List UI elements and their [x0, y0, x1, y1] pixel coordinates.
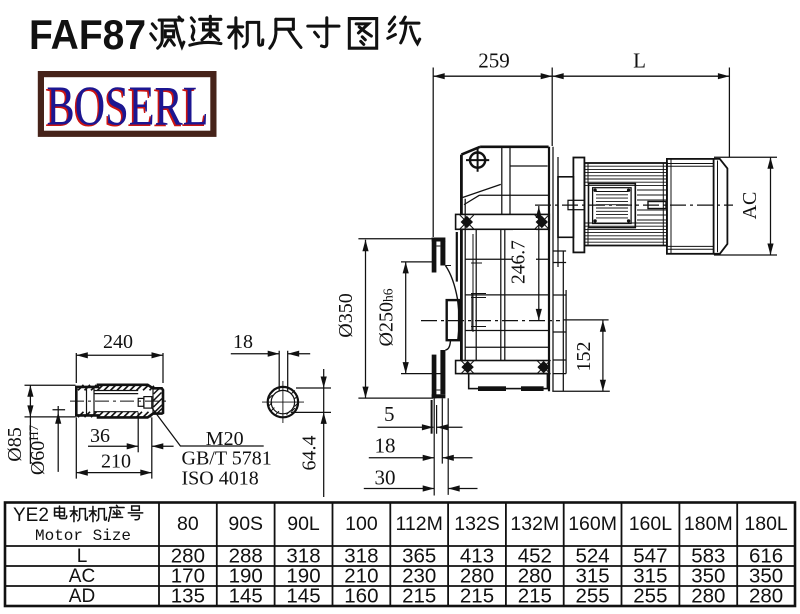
svg-text:18: 18	[375, 434, 396, 458]
svg-text:210: 210	[101, 451, 131, 473]
svg-text:L: L	[77, 546, 88, 567]
svg-text:AD: AD	[69, 586, 95, 607]
svg-text:90L: 90L	[287, 513, 320, 535]
svg-text:YE2: YE2	[13, 505, 49, 526]
svg-text:BOSERL: BOSERL	[47, 75, 209, 137]
svg-text:280: 280	[691, 585, 725, 608]
svg-text:180L: 180L	[744, 513, 788, 535]
svg-text:Ø60H7: Ø60H7	[26, 424, 49, 475]
svg-text:152: 152	[573, 342, 595, 372]
svg-text:100: 100	[345, 513, 378, 535]
svg-text:180M: 180M	[684, 513, 733, 535]
svg-text:5: 5	[384, 402, 395, 426]
svg-text:132M: 132M	[510, 513, 559, 535]
svg-text:GB/T 5781: GB/T 5781	[182, 448, 272, 470]
svg-text:160L: 160L	[629, 513, 673, 535]
svg-text:145: 145	[229, 585, 263, 608]
svg-text:255: 255	[575, 585, 609, 608]
svg-text:280: 280	[749, 585, 783, 608]
svg-text:80: 80	[177, 513, 199, 535]
svg-text:64.4: 64.4	[299, 436, 321, 471]
svg-text:18: 18	[233, 331, 253, 353]
svg-text:AC: AC	[69, 566, 95, 587]
svg-text:Ø250h6: Ø250h6	[376, 288, 398, 346]
svg-text:135: 135	[171, 585, 205, 608]
svg-text:Ø350: Ø350	[335, 293, 357, 337]
svg-text:30: 30	[375, 466, 396, 490]
svg-text:215: 215	[460, 585, 494, 608]
svg-text:36: 36	[90, 425, 110, 447]
svg-text:240: 240	[103, 331, 133, 353]
svg-text:Ø85: Ø85	[4, 427, 26, 461]
svg-text:246.7: 246.7	[509, 240, 530, 284]
svg-text:FAF87: FAF87	[29, 11, 146, 58]
svg-text:215: 215	[518, 585, 552, 608]
svg-text:160M: 160M	[568, 513, 617, 535]
svg-text:L: L	[633, 49, 646, 73]
svg-text:215: 215	[402, 585, 436, 608]
svg-text:AC: AC	[739, 192, 761, 220]
svg-text:259: 259	[478, 49, 510, 73]
svg-text:132S: 132S	[454, 513, 500, 535]
svg-text:90S: 90S	[228, 513, 263, 535]
svg-text:255: 255	[633, 585, 667, 608]
svg-text:Motor Size: Motor Size	[35, 527, 131, 545]
svg-text:160: 160	[344, 585, 378, 608]
svg-text:ISO 4018: ISO 4018	[182, 468, 259, 490]
svg-text:145: 145	[286, 585, 320, 608]
svg-text:112M: 112M	[396, 513, 443, 535]
